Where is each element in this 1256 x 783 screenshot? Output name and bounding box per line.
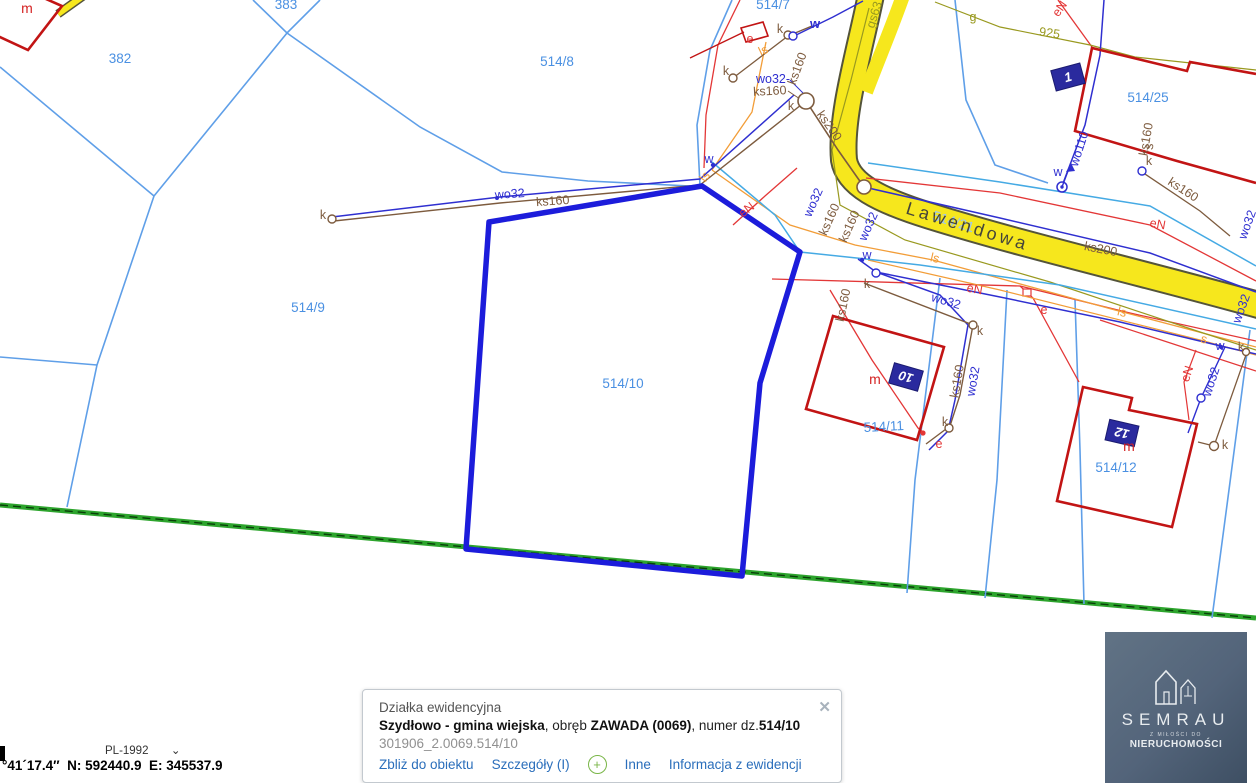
map-label: g: [970, 10, 977, 24]
map-label: ls: [696, 169, 713, 184]
map-label: w: [703, 152, 714, 166]
map-label: e: [936, 437, 943, 451]
other-link[interactable]: Inne: [625, 757, 651, 772]
map-label: w: [861, 248, 872, 262]
map-label: s: [1199, 332, 1208, 347]
utility-symbols: [328, 31, 1250, 451]
details-link[interactable]: Szczegóły (I): [492, 757, 570, 772]
valve-icon: [872, 269, 880, 277]
map-label: ks160: [785, 51, 810, 87]
manhole-icon: [857, 180, 871, 194]
semrau-logo: SEMRAU Z MIŁOŚCI DO NIERUCHOMOŚCI: [1105, 632, 1247, 783]
map-label: eN: [1178, 364, 1196, 384]
map-label: k: [1222, 438, 1229, 452]
map-label: ks160: [833, 287, 854, 323]
popup-title: Działka ewidencyjna: [379, 700, 827, 715]
map-label: eN: [736, 199, 757, 220]
manhole-icon: [328, 215, 336, 223]
map-label: wo32: [1200, 365, 1223, 399]
map-label: k: [320, 208, 327, 222]
map-label: wo32: [493, 186, 525, 202]
map-label: m: [1123, 438, 1135, 454]
map-label: 514/10: [602, 376, 643, 391]
registry-info-link[interactable]: Informacja z ewidencji: [669, 757, 802, 772]
map-label: wo32: [963, 365, 982, 398]
map-label: m: [21, 0, 33, 16]
map-label: wo32: [800, 186, 825, 220]
crs-selector[interactable]: PL-1992 ⌄: [105, 743, 181, 757]
logo-tagline-small: Z MIŁOŚCI DO: [1150, 732, 1202, 738]
building-small-top: [741, 22, 768, 42]
map-label: k: [942, 415, 949, 429]
map-label: 514/12: [1095, 460, 1136, 475]
map-label: wo110: [1067, 129, 1092, 168]
manhole-icon: [1210, 442, 1219, 451]
map-label: ls: [1116, 304, 1128, 320]
map-label: k: [777, 22, 784, 36]
map-label: eN: [1049, 0, 1070, 19]
map-label: k: [788, 99, 795, 113]
map-label: s: [1142, 142, 1157, 151]
map-label: 514/25: [1127, 90, 1168, 105]
map-label: w: [809, 16, 821, 31]
building-12: [1057, 387, 1197, 527]
map-label: k: [977, 324, 984, 338]
parcel-description: Szydłowo - gmina wiejska, obręb ZAWADA (…: [379, 718, 827, 733]
map-label: k: [723, 64, 730, 78]
map-label: wo32: [1235, 208, 1256, 242]
map-label: w: [1052, 165, 1063, 179]
map-label: e: [747, 32, 754, 46]
map-label: wo32: [929, 290, 963, 312]
parcel-lines: [0, 0, 1250, 618]
address-plate: 1: [1051, 63, 1085, 91]
map-label: k: [1238, 340, 1245, 354]
address-plate: 10: [889, 363, 924, 391]
map-label: 514/9: [291, 300, 325, 315]
cadastral-map-canvas[interactable]: 11012 382383514/8514/7514/9514/10514/115…: [0, 0, 1256, 783]
map-label: 382: [109, 51, 132, 66]
close-icon[interactable]: ✕: [818, 698, 831, 716]
map-label: k: [864, 277, 871, 291]
manhole-icon: [969, 321, 977, 329]
map-label: eN: [966, 281, 984, 298]
coordinates-readout: °41´17.4″ N: 592440.9 E: 345537.9: [2, 758, 223, 773]
house-icon: [1150, 666, 1202, 706]
map-label: ls: [756, 42, 770, 59]
map-label: w: [1214, 339, 1225, 353]
parcel-info-popup: ✕ Działka ewidencyjna Szydłowo - gmina w…: [362, 689, 842, 783]
map-label: eN: [1149, 216, 1167, 233]
chevron-down-icon[interactable]: ⌄: [171, 745, 181, 757]
map-label: e: [1041, 303, 1048, 317]
manhole-icon: [729, 74, 737, 82]
manhole-icon: [798, 93, 814, 109]
map-label: 514/11: [863, 418, 904, 435]
logo-tagline: NIERUCHOMOŚCI: [1130, 739, 1223, 750]
map-label: ks160: [753, 83, 787, 99]
map-label: ls: [929, 250, 941, 266]
logo-brand: SEMRAU: [1122, 710, 1231, 730]
building-514-25: [1075, 48, 1256, 183]
add-icon[interactable]: +: [588, 755, 607, 774]
map-label: 514/8: [540, 54, 574, 69]
map-label: k: [1146, 154, 1153, 168]
map-viewer: 11012 382383514/8514/7514/9514/10514/115…: [0, 0, 1256, 783]
map-label: 514/7: [756, 0, 790, 12]
green-boundary-line: [0, 505, 1256, 618]
valve-icon: [1138, 167, 1146, 175]
map-label: 925: [1038, 25, 1061, 42]
parcel-identifier: 301906_2.0069.514/10: [379, 736, 827, 751]
map-label: m: [869, 371, 881, 387]
valve-icon: [789, 32, 797, 40]
map-label: 383: [275, 0, 298, 12]
map-label: ks160: [536, 193, 570, 209]
map-label: ks160: [1136, 122, 1156, 157]
zoom-to-object-link[interactable]: Zbliż do obiektu: [379, 757, 474, 772]
